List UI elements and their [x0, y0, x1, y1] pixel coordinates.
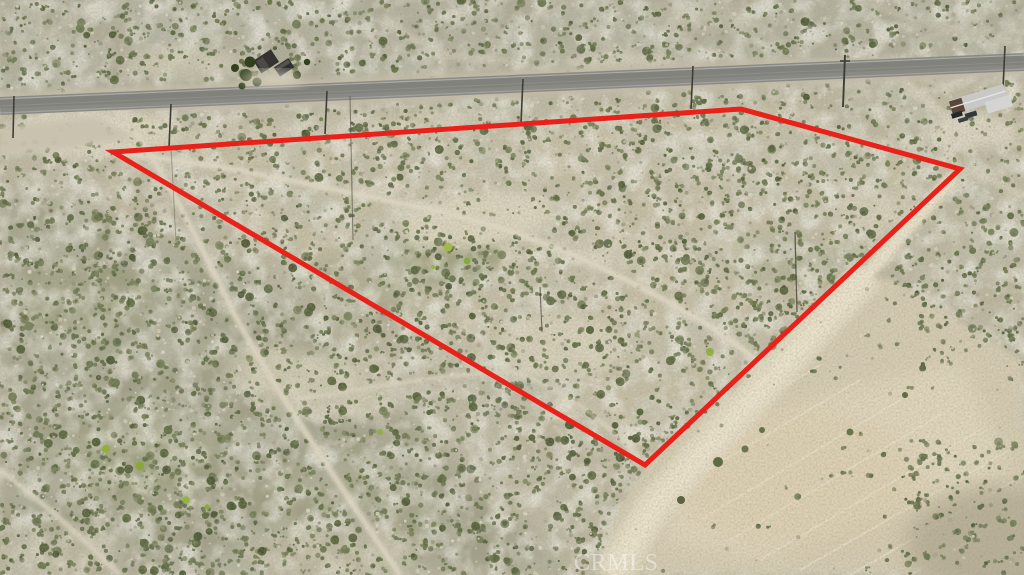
- svg-text:CRMLS: CRMLS: [574, 549, 659, 575]
